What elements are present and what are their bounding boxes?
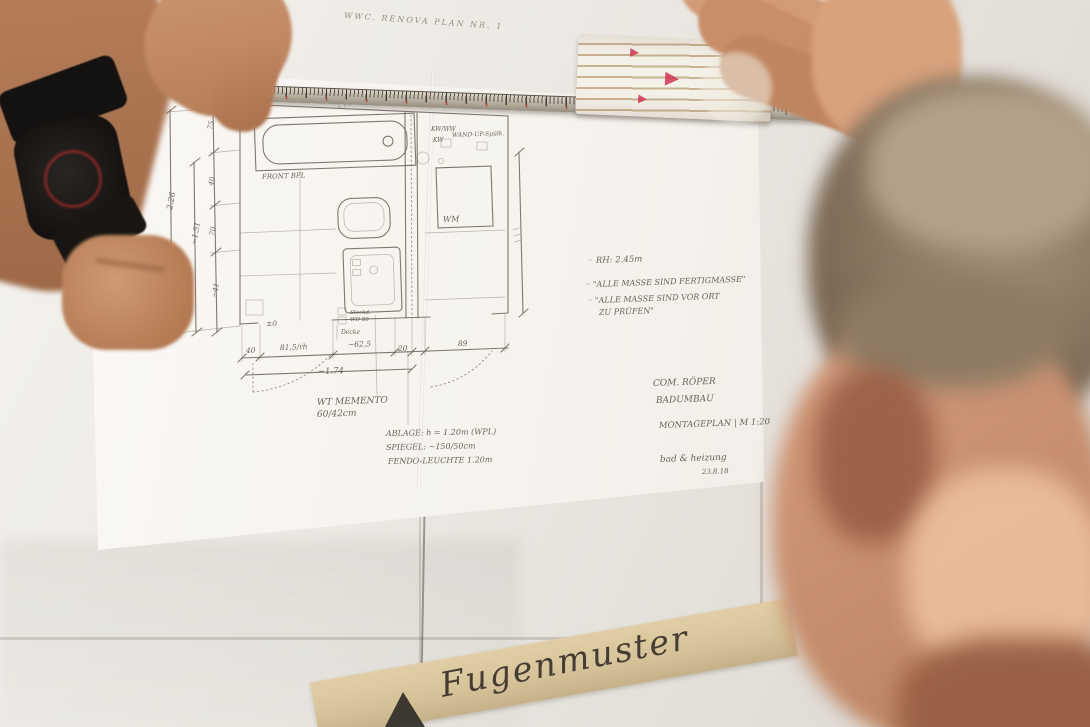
note-shelf: ABLAGE: h = 1.20m (WPL) — [385, 427, 496, 438]
folding-rule-red-mark-3 — [638, 94, 647, 103]
bathtub — [254, 113, 416, 171]
dim-bottom-total: ~1.74 — [318, 366, 344, 377]
floor-step — [246, 300, 263, 315]
bathtub-drain — [383, 136, 393, 146]
dim-bottom-5: 89 — [458, 339, 468, 348]
plaster-dust-on-fingers — [700, 52, 772, 124]
faucet-box-2 — [353, 269, 361, 275]
washbasin-outline — [343, 247, 402, 313]
cistern-box-2 — [477, 142, 487, 150]
note-bullet-dashes — [586, 260, 592, 300]
titleblock-sheet: MONTAGEPLAN | M 1:20 — [658, 417, 771, 431]
site-note-room-height: RH: 2.45m — [595, 254, 643, 266]
dim-left-2: 40 — [207, 176, 217, 188]
floor-drain — [417, 152, 429, 164]
socket-box-2 — [338, 317, 346, 324]
note-mirror: SPIEGEL: ~150/50cm — [386, 441, 476, 452]
site-note-check-1: "ALLE MASSE SIND VOR ORT — [595, 292, 721, 305]
dim-left-4: ~41 — [210, 282, 221, 298]
dim-left-1: 75 — [206, 120, 216, 131]
label-ceiling: Decke — [340, 329, 360, 336]
small-drain — [439, 159, 444, 164]
label-cold-water: KW — [432, 137, 444, 144]
folding-rule-red-mark-2 — [665, 72, 680, 87]
bathtub-inner — [262, 120, 407, 164]
label-socket: Steckd. — [350, 310, 371, 316]
faucet-box-1 — [352, 259, 360, 265]
label-basin-size: 60/42cm — [317, 409, 357, 420]
note-light: FENDO-LEUCHTE 1.20m — [387, 455, 493, 466]
titleblock-project: BADUMBAU — [655, 394, 715, 406]
label-floor-level: ±0 — [266, 319, 277, 328]
label-basin-model: WT MEMENTO — [317, 396, 389, 408]
toilet — [337, 197, 390, 239]
plan-inner-wall-axis — [411, 115, 412, 318]
dim-left-total: 2.26 — [165, 191, 177, 211]
tile-grid-lines — [240, 170, 505, 320]
left-fist — [62, 235, 194, 350]
site-note-finished-dims: "ALLE MASSE SIND FERTIGMASSE" — [593, 275, 746, 289]
site-note-check-2: ZU PRÜFEN" — [598, 306, 654, 317]
header-note: WWC. RENOVA PLAN NR. 1 — [344, 11, 504, 31]
label-front-panel: FRONT BPL — [261, 171, 306, 181]
label-washing-machine: WM — [443, 214, 461, 224]
dim-bottom-3: ~62,5 — [348, 339, 372, 349]
dim-bottom-1: 40 — [245, 346, 256, 355]
folding-rule-red-mark-1 — [630, 48, 639, 57]
right-dimension-line — [515, 148, 528, 317]
titleblock-client: COM. RÖPER — [653, 375, 716, 389]
titleblock-date: 23.8.18 — [701, 467, 730, 476]
plan-bottom-wall — [240, 313, 508, 324]
dim-left-partial: ~1.51 — [189, 221, 202, 245]
dim-bottom-2: 81,5/rh — [280, 342, 308, 352]
watch-red-ring — [44, 150, 102, 208]
right-dimension-value-scribble — [513, 228, 521, 242]
washbasin — [343, 247, 402, 313]
dim-bottom-4: 20 — [397, 344, 408, 353]
photo-scene: Fugenmuster — [0, 0, 1090, 727]
titleblock-company: bad & heizung — [660, 453, 727, 465]
toilet-outline — [337, 197, 390, 239]
door-swing-right — [431, 351, 492, 387]
label-cistern: WAND-UP-Spülk. — [452, 130, 505, 139]
dim-left-3: 70 — [208, 226, 218, 237]
label-socket-height: WD 80 — [350, 317, 369, 323]
toilet-inner — [343, 202, 384, 231]
washbasin-inner — [350, 254, 395, 305]
man-hair-highlight — [868, 88, 1090, 248]
basin-drain — [370, 266, 378, 274]
